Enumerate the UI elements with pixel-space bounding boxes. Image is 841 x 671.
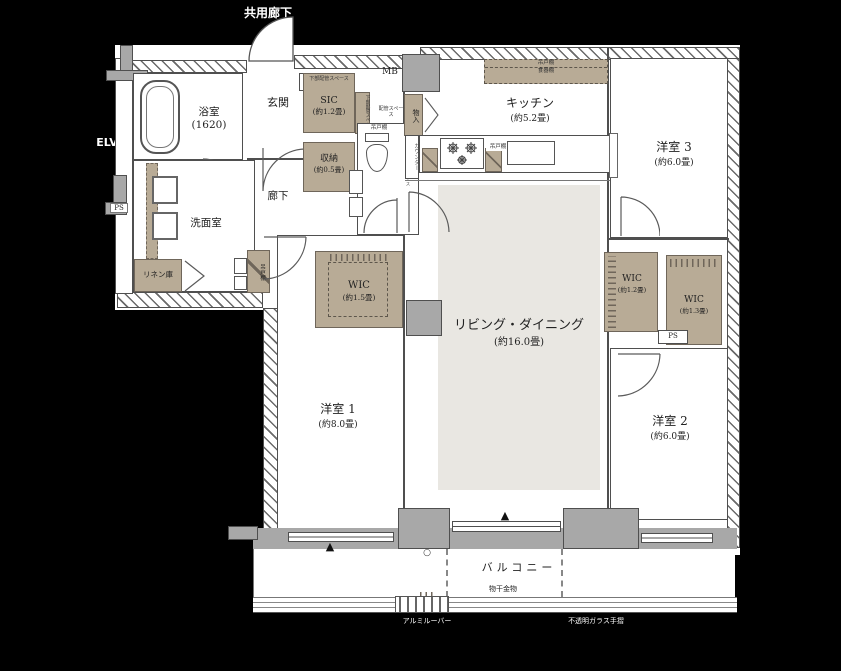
bedroom3-wall-niche [609,133,618,178]
storage-name: 収納 [320,154,338,164]
bedroom2-label: 洋室 2 (約6.0畳) [624,414,716,443]
stove-burner-icons [441,139,483,168]
kitchen-size: (約5.2畳) [510,114,549,124]
railing-line-2 [253,607,737,608]
bath-name: 浴室 [199,106,220,118]
meter-box-label: MB [379,67,401,78]
kitchen-upper-shelf: 吊戸棚 食器棚 [484,59,608,84]
linen-bifold-door [184,259,208,293]
entrance-door-arc [248,16,294,62]
bedroom3-size: (約6.0畳) [654,158,693,168]
counter-bottom-line [405,180,610,181]
drain-circle: ○ [421,548,433,559]
bedroom3-door-arc [620,196,660,236]
kitchen-sink [507,141,555,165]
sic-pipe-note: 下部配管スペース [304,76,354,82]
wall-top-bath [131,60,247,73]
wic-c-hangers [670,259,718,267]
toilet-door-arc [363,195,398,234]
balcony-partition-right [563,508,639,549]
dish-cupboard-label: 食器棚 [485,68,607,75]
bedroom2-door-arc [617,353,661,397]
plan-cutout-bottom-left [115,310,263,555]
entrance-label: 玄関 [256,96,300,109]
pipe-space-label-top: 配管スペース [378,106,404,118]
ps-mid-label: PS [658,332,688,340]
wic-b-size: (約1.2畳) [618,286,646,294]
toilet-shelf-a [349,170,363,194]
ac-unit-block [406,300,442,336]
washroom-label: 洗面室 [178,217,234,230]
toilet-tank [365,133,389,142]
wall-right [727,58,740,548]
balcony-partition-mid [398,508,450,549]
balcony-divider-1 [446,549,448,597]
kitchen-label: キッチン (約5.2畳) [495,96,565,125]
bath-size: (1620) [192,119,227,131]
bedroom2-window [641,533,713,543]
counter-hatch-right [485,148,502,172]
hatch-triangle-1: ▲ [322,540,338,553]
wall-bed3-bottom [607,238,729,240]
louver-section [395,596,449,613]
bath-label: 浴室 (1620) [178,106,240,131]
living-label: リビング・ダイニング (約16.0畳) [428,318,610,349]
bedroom2-name: 洋室 2 [652,414,687,428]
bedroom1-label: 洋室 1 (約8.0畳) [292,402,384,431]
wall-bedroom1-left [263,308,278,532]
aluminum-louver-label: アルミルーバー [392,616,462,626]
balcony-label: バルコニー [459,561,579,574]
vanity-sink [152,212,178,240]
bedroom1-door-arc [263,236,307,280]
railing-line-1 [253,602,737,603]
hanging-cupboard-top-label: 吊戸棚 [485,60,607,68]
bedroom3-name: 洋室 3 [656,140,691,154]
mono-ire-fold-door [424,96,442,134]
living-entry-door-arc [408,191,450,233]
wall-washroom-bottom [117,292,263,308]
balcony-partition-left [228,526,258,540]
ps-left-label: PS [110,203,128,213]
bathtub-inner [146,86,174,148]
hall-shelf-b [234,276,247,290]
opaque-glass-label: 不透明ガラス手摺 [556,616,636,626]
mono-ire-label: 物入 [408,100,419,132]
laundry-hardware-label: 物干金物 [481,585,525,593]
bedroom2-size: (約6.0畳) [650,432,689,442]
washing-machine [152,176,178,204]
living-name: リビング・ダイニング [454,318,584,333]
living-size: (約16.0畳) [494,337,544,348]
toilet-shelf-b [349,197,363,217]
wic-b-name: WIC [622,274,642,284]
counter-strip: カウンター [405,135,419,179]
hall-shelf-a [234,258,247,274]
wic-c-label: WIC (約1.3畳) [668,295,720,317]
toilet-cupboard-label: 吊戸棚 [361,125,397,132]
bedroom1-name: 洋室 1 [320,402,355,416]
wic-c-size: (約1.3畳) [680,307,708,315]
bedroom1-window [288,532,394,542]
storage-label: 収納 (約0.5畳) [304,154,354,176]
living-window [452,521,561,532]
bedroom3-label: 洋室 3 (約6.0畳) [628,140,720,169]
storage-size: (約0.5畳) [314,166,345,174]
floor-plan: 共用廊下 ELV PS 浴室 (1620) 洗面室 リネン庫 玄関 廊下 [0,0,841,671]
hatch-triangle-2: ▲ [497,509,513,522]
bedroom1-size: (約8.0畳) [318,420,357,430]
sic-label: SIC (約1.2畳) [304,95,354,118]
kitchen-name: キッチン [506,96,554,110]
wic-c-name: WIC [684,295,704,305]
wic-b-label: WIC (約1.2畳) [606,274,658,296]
sic-name: SIC [320,95,338,106]
meter-box [402,54,440,92]
counter-hatch-left [422,148,438,172]
linen-label: リネン庫 [135,270,181,279]
entrance-hall-door-arc [262,148,306,192]
balcony-railing [253,597,737,613]
sic-size: (約1.2畳) [313,107,346,116]
